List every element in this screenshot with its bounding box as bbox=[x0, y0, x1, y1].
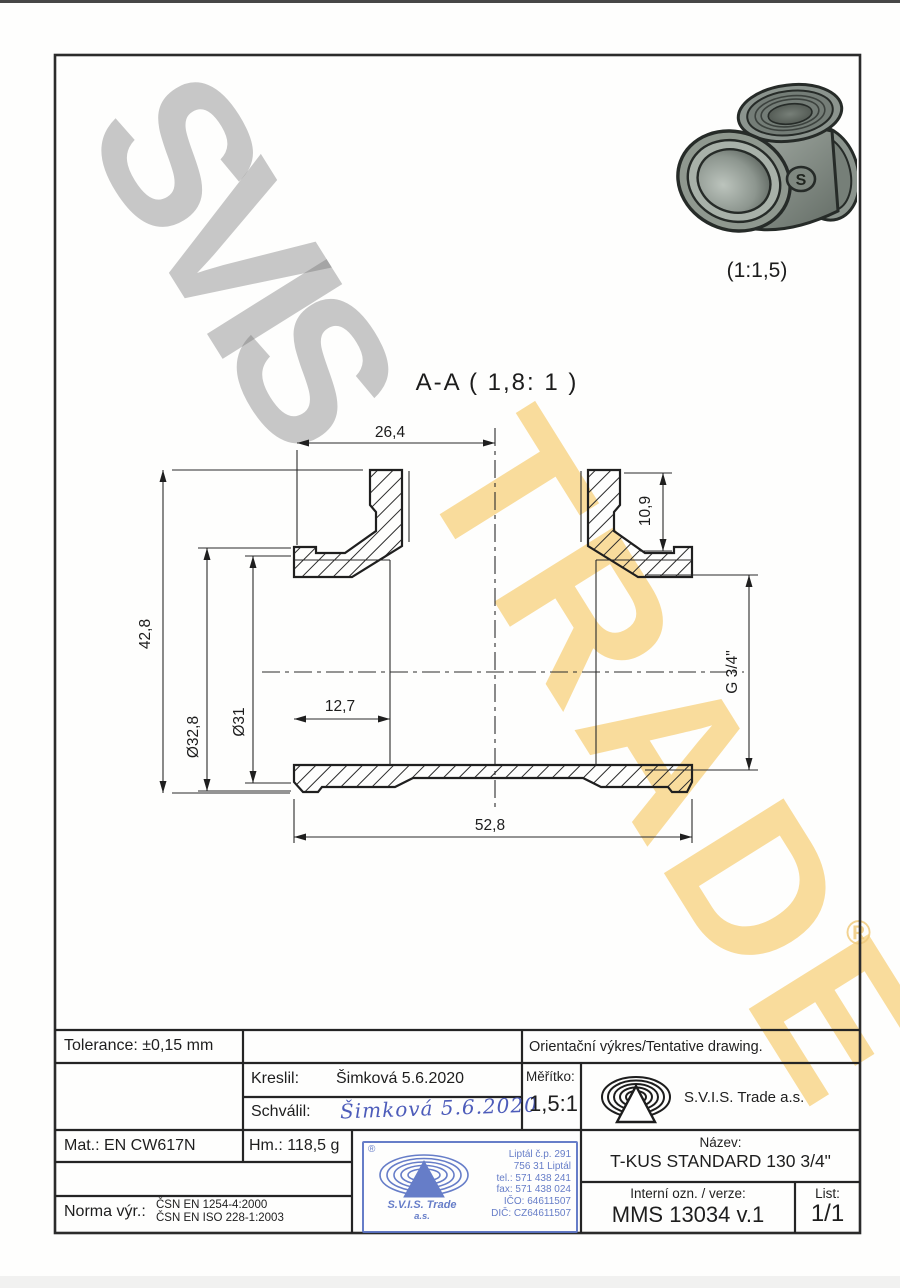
photo-illustration: S bbox=[672, 79, 857, 247]
list-value: 1/1 bbox=[795, 1200, 860, 1228]
material-text: Mat.: EN CW617N bbox=[64, 1137, 196, 1155]
weight-text: Hm.: 118,5 g bbox=[249, 1137, 339, 1155]
dim-top-width: 26,4 bbox=[375, 424, 406, 441]
dim-thread-depth: 12,7 bbox=[325, 698, 355, 715]
stamp-ico: IČO: 64611507 bbox=[491, 1196, 571, 1208]
wall-left-flange bbox=[294, 470, 402, 577]
kreslil-value: Šimková 5.6.2020 bbox=[336, 1070, 464, 1088]
scanned-technical-drawing: { "watermark": { "word1": "SVIS", "word2… bbox=[0, 0, 900, 1288]
interni-label: Interní ozn. / verze: bbox=[581, 1186, 795, 1201]
wall-bottom bbox=[294, 765, 692, 792]
kreslil-label: Kreslil: bbox=[251, 1070, 299, 1088]
stamp-address-line: Liptál č.p. 291 bbox=[491, 1149, 571, 1161]
section-title: A-A ( 1,8: 1 ) bbox=[416, 369, 579, 396]
tolerance-text: Tolerance: ±0,15 mm bbox=[64, 1037, 213, 1055]
dim-overall-height: 42,8 bbox=[137, 619, 154, 649]
stamp-dic: DIČ: CZ64611507 bbox=[491, 1208, 571, 1220]
tentative-drawing-note: Orientační výkres/Tentative drawing. bbox=[529, 1039, 763, 1055]
norma-standard-1: ČSN EN 1254-4:2000 bbox=[156, 1199, 267, 1212]
schvalil-label: Schválil: bbox=[251, 1103, 311, 1121]
dim-branch-depth: 10,9 bbox=[637, 496, 654, 526]
norma-standard-2: ČSN EN ISO 228-1:2003 bbox=[156, 1212, 284, 1225]
nazev-value: T-KUS STANDARD 130 3/4" bbox=[581, 1151, 860, 1172]
meritko-label: Měřítko: bbox=[526, 1069, 575, 1084]
stamp-logo-icon bbox=[374, 1153, 474, 1201]
product-photo-tee-fitting: S bbox=[672, 73, 857, 253]
list-label: List: bbox=[795, 1186, 860, 1201]
dim-thread-size: G 3/4" bbox=[724, 650, 741, 693]
dim-outer-diameter: Ø32,8 bbox=[185, 716, 202, 758]
svis-logo-icon bbox=[602, 1077, 670, 1122]
stamp-phone: tel.: 571 438 241 bbox=[491, 1173, 571, 1185]
thread-lines bbox=[294, 471, 692, 765]
company-stamp: ® S.V.I.S. Trade a.s. Liptál č.p. 291 75… bbox=[362, 1141, 578, 1233]
scan-edge-top bbox=[0, 0, 900, 3]
interni-value: MMS 13034 v.1 bbox=[581, 1202, 795, 1228]
meritko-value: 1,5:1 bbox=[529, 1091, 578, 1117]
stamp-address-line: 756 31 Liptál bbox=[491, 1161, 571, 1173]
company-name: S.V.I.S. Trade a.s. bbox=[684, 1089, 804, 1106]
dim-bore-diameter: Ø31 bbox=[231, 707, 248, 736]
section-view-tee-fitting: 26,4 10,9 42,8 Ø32,8 Ø31 12,7 G 3/4" 52,… bbox=[137, 259, 787, 843]
nazev-label: Název: bbox=[581, 1135, 860, 1150]
stamp-fax: fax: 571 438 024 bbox=[491, 1184, 571, 1196]
photo-scale-label: (1:1,5) bbox=[727, 259, 788, 282]
stamp-company-suffix: a.s. bbox=[414, 1211, 430, 1222]
scan-edge-bottom bbox=[0, 1276, 900, 1288]
norma-label: Norma výr.: bbox=[64, 1203, 146, 1221]
badge-letter: S bbox=[796, 172, 807, 189]
dim-overall-length: 52,8 bbox=[475, 817, 505, 834]
